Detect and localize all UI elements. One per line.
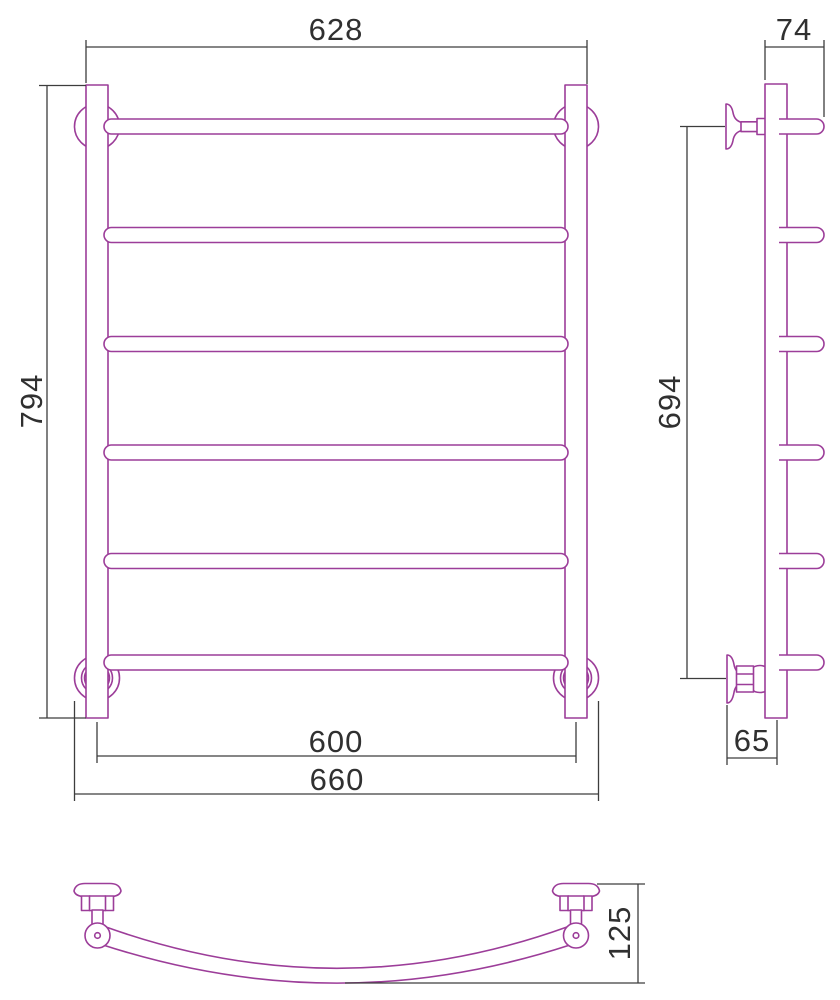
dimension-lines [39,40,824,983]
top-view-right-mount [553,884,600,926]
side-rail-stub-3 [779,337,824,352]
dim-65-label: 65 [734,723,770,758]
side-rail-stub-6 [779,655,824,670]
dim-694-label: 694 [652,375,687,430]
front-view [75,85,599,718]
side-rail-stub-4 [779,445,824,460]
top-view-curved-rail [102,927,572,983]
dim-74-label: 74 [776,12,812,47]
side-view [726,84,824,718]
front-rail-5 [104,554,568,569]
dim-628-label: 628 [309,12,364,47]
towel-rail-drawing: 628 74 794 694 600 660 65 125 [0,0,840,1000]
side-rail-stub-5 [779,554,824,569]
top-view-mount-block [90,896,106,911]
top-view-right-post-center [573,933,579,939]
front-rail-4 [104,445,568,460]
top-view-mount-flange [74,884,121,897]
dim-794-label: 794 [14,374,49,429]
dim-660-label: 660 [310,762,365,797]
front-rail-3 [104,337,568,352]
side-top-bracket-flange [726,104,742,149]
drawing-canvas: 628 74 794 694 600 660 65 125 [0,0,840,1000]
top-view-left-post-center [95,933,101,939]
side-post [765,84,787,718]
side-rail-stub-1 [779,119,824,134]
top-view [74,884,600,984]
front-left-post [86,85,108,718]
front-rail-2 [104,228,568,243]
front-right-post [565,85,587,718]
dim-125-label: 125 [602,906,637,961]
dimension-labels: 628 74 794 694 600 660 65 125 [14,12,812,960]
side-bottom-bracket-nut [737,666,754,692]
front-rail-6 [104,655,568,670]
top-view-left-mount [74,884,121,926]
side-rail-stub-2 [779,228,824,243]
dim-600-label: 600 [309,724,364,759]
front-rail-1 [104,119,568,134]
